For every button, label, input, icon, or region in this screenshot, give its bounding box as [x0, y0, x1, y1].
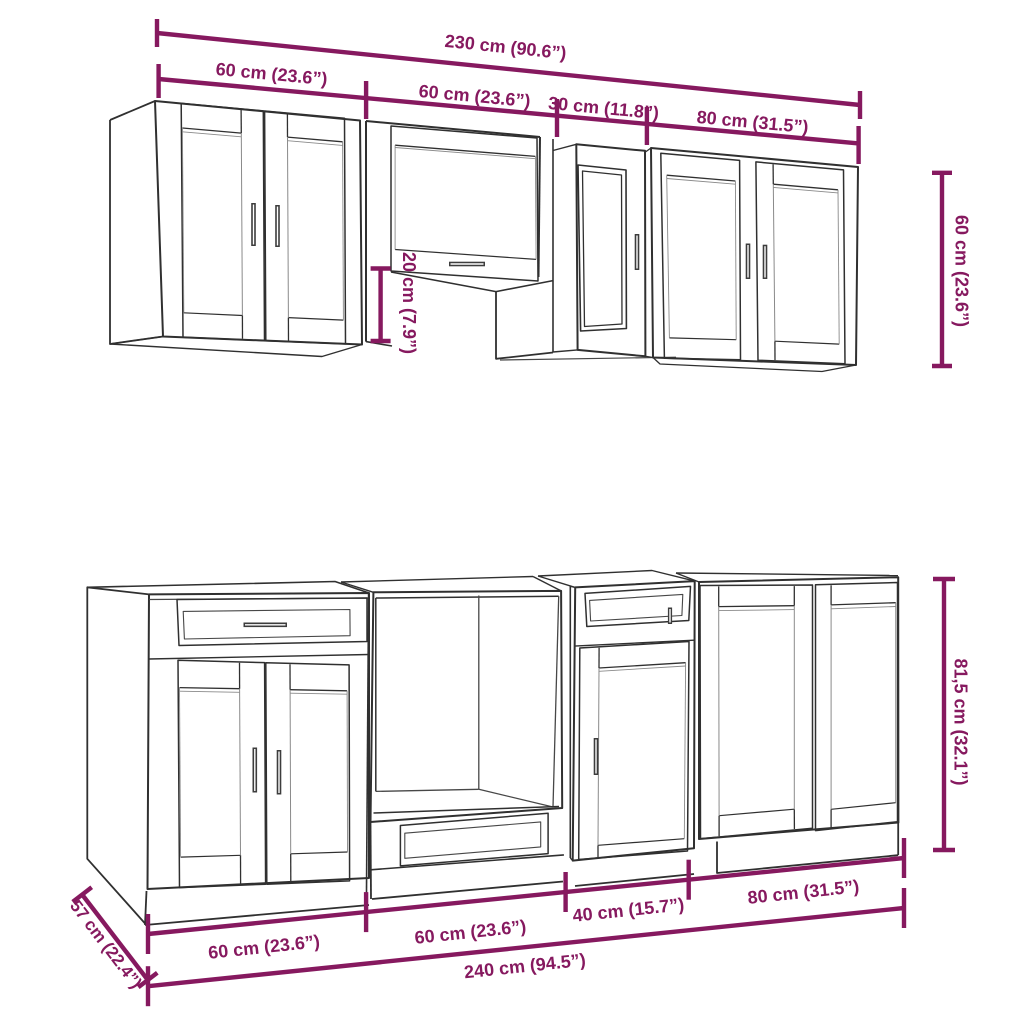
- svg-text:81,5 cm (32.1”): 81,5 cm (32.1”): [951, 658, 971, 785]
- svg-text:60 cm (23.6”): 60 cm (23.6”): [952, 215, 972, 327]
- svg-text:20 cm (7.9”): 20 cm (7.9”): [399, 252, 419, 354]
